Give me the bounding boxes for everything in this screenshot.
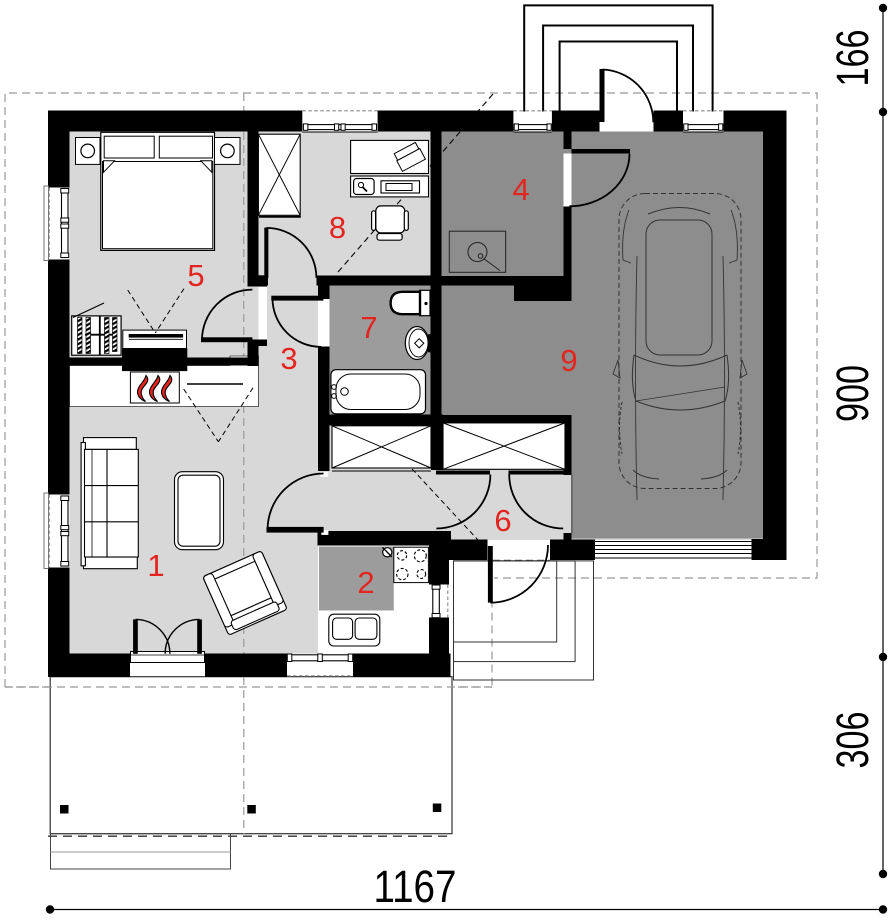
svg-text:1: 1 <box>147 548 164 583</box>
svg-text:166: 166 <box>827 30 878 87</box>
svg-text:306: 306 <box>827 712 878 769</box>
svg-text:9: 9 <box>560 343 577 378</box>
svg-text:4: 4 <box>512 172 529 207</box>
svg-text:8: 8 <box>329 210 346 245</box>
svg-text:2: 2 <box>357 565 374 600</box>
svg-text:3: 3 <box>280 341 297 376</box>
svg-text:1167: 1167 <box>374 861 457 912</box>
svg-text:5: 5 <box>187 258 204 293</box>
svg-text:7: 7 <box>360 310 377 345</box>
svg-text:900: 900 <box>827 365 878 422</box>
svg-text:6: 6 <box>494 503 511 538</box>
